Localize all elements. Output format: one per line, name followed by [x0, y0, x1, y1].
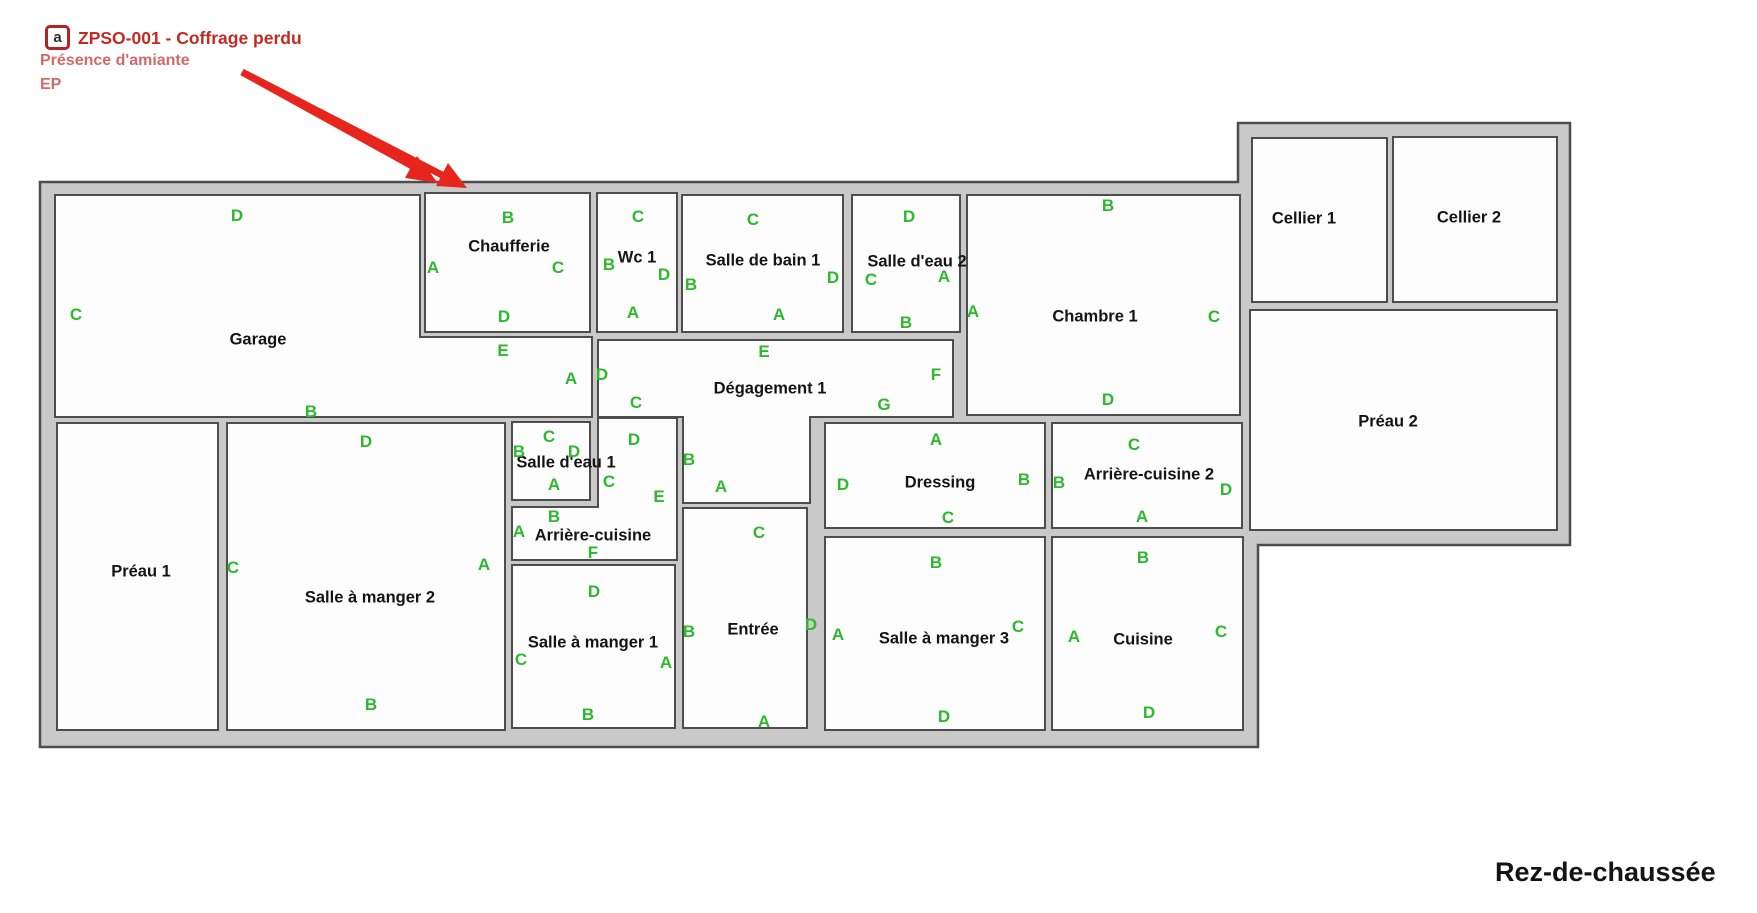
room-label-salle-de-bain-1: Salle de bain 1 — [706, 252, 821, 271]
asbestos-marker-icon[interactable]: a — [45, 25, 70, 50]
face-letter-entree-C[interactable]: C — [753, 523, 765, 543]
face-letter-wc-1-C[interactable]: C — [632, 207, 644, 227]
floor-plan-page: a ZPSO-001 - Coffrage perdu Présence d'a… — [0, 0, 1757, 913]
room-label-preau-1: Préau 1 — [111, 563, 171, 582]
plan-overlay: a ZPSO-001 - Coffrage perdu Présence d'a… — [0, 0, 1757, 913]
face-letter-salle-d-eau-1-C[interactable]: C — [543, 427, 555, 447]
face-letter-salle-d-eau-1-D[interactable]: D — [568, 442, 580, 462]
face-letter-garage-C[interactable]: C — [70, 305, 82, 325]
face-letter-degagement-1-E[interactable]: E — [758, 342, 769, 362]
face-letter-garage-E[interactable]: E — [497, 341, 508, 361]
annotation-title: ZPSO-001 - Coffrage perdu — [78, 28, 302, 49]
face-letter-cuisine-D[interactable]: D — [1143, 703, 1155, 723]
face-letter-entree-A[interactable]: A — [758, 712, 770, 732]
room-label-chaufferie: Chaufferie — [468, 238, 550, 257]
face-letter-chambre-1-A[interactable]: A — [967, 302, 979, 322]
room-label-cellier-1: Cellier 1 — [1272, 210, 1336, 229]
face-letter-salle-de-bain-1-C[interactable]: C — [747, 210, 759, 230]
face-letter-salle-a-manger-3-B[interactable]: B — [930, 553, 942, 573]
room-label-entree: Entrée — [727, 621, 778, 640]
face-letter-salle-a-manger-2-B[interactable]: B — [365, 695, 377, 715]
face-letter-salle-d-eau-1-A[interactable]: A — [548, 475, 560, 495]
face-letter-arriere-cuisine-A[interactable]: A — [513, 522, 525, 542]
face-letter-cuisine-B[interactable]: B — [1137, 548, 1149, 568]
face-letter-dressing-D[interactable]: D — [837, 475, 849, 495]
face-letter-salle-d-eau-2-B[interactable]: B — [900, 313, 912, 333]
face-letter-arriere-cuisine-2-C[interactable]: C — [1128, 435, 1140, 455]
face-letter-salle-a-manger-3-D[interactable]: D — [938, 707, 950, 727]
face-letter-degagement-1-D[interactable]: D — [596, 365, 608, 385]
face-letter-entree-B[interactable]: B — [683, 622, 695, 642]
face-letter-arriere-cuisine-E[interactable]: E — [653, 487, 664, 507]
face-letter-arriere-cuisine-B[interactable]: B — [548, 507, 560, 527]
face-letter-chaufferie-C[interactable]: C — [552, 258, 564, 278]
face-letter-salle-d-eau-2-A[interactable]: A — [938, 267, 950, 287]
room-label-salle-d-eau-1: Salle d'eau 1 — [516, 454, 615, 473]
room-label-cellier-2: Cellier 2 — [1437, 209, 1501, 228]
face-letter-chambre-1-B[interactable]: B — [1102, 196, 1114, 216]
face-letter-dressing-B[interactable]: B — [1018, 470, 1030, 490]
room-label-degagement-1: Dégagement 1 — [714, 380, 827, 399]
face-letter-salle-de-bain-1-D[interactable]: D — [827, 268, 839, 288]
face-letter-chambre-1-D[interactable]: D — [1102, 390, 1114, 410]
face-letter-garage-D[interactable]: D — [231, 206, 243, 226]
face-letter-degagement-1-B[interactable]: B — [683, 450, 695, 470]
face-letter-salle-a-manger-1-C[interactable]: C — [515, 650, 527, 670]
face-letter-wc-1-A[interactable]: A — [627, 303, 639, 323]
face-letter-arriere-cuisine-F[interactable]: F — [588, 543, 598, 563]
face-letter-wc-1-B[interactable]: B — [603, 255, 615, 275]
face-letter-degagement-1-A[interactable]: A — [715, 477, 727, 497]
face-letter-garage-B[interactable]: B — [305, 402, 317, 422]
face-letter-salle-a-manger-1-A[interactable]: A — [660, 653, 672, 673]
floor-name-label: Rez-de-chaussée — [1495, 857, 1716, 888]
face-letter-chaufferie-B[interactable]: B — [502, 208, 514, 228]
room-label-chambre-1: Chambre 1 — [1052, 308, 1137, 327]
room-label-preau-2: Préau 2 — [1358, 413, 1418, 432]
face-letter-degagement-1-C[interactable]: C — [630, 393, 642, 413]
face-letter-entree-D[interactable]: D — [805, 615, 817, 635]
room-label-salle-a-manger-2: Salle à manger 2 — [305, 589, 435, 608]
room-label-salle-d-eau-2: Salle d'eau 2 — [867, 253, 966, 272]
face-letter-garage-A[interactable]: A — [565, 369, 577, 389]
face-letter-salle-a-manger-2-D[interactable]: D — [360, 432, 372, 452]
room-label-arriere-cuisine-2: Arrière-cuisine 2 — [1084, 466, 1214, 485]
face-letter-salle-a-manger-3-C[interactable]: C — [1012, 617, 1024, 637]
face-letter-salle-a-manger-1-D[interactable]: D — [588, 582, 600, 602]
face-letter-dressing-A[interactable]: A — [930, 430, 942, 450]
face-letter-arriere-cuisine-2-D[interactable]: D — [1220, 480, 1232, 500]
face-letter-chambre-1-C[interactable]: C — [1208, 307, 1220, 327]
face-letter-arriere-cuisine-C[interactable]: C — [603, 472, 615, 492]
face-letter-degagement-1-F[interactable]: F — [931, 365, 941, 385]
face-letter-salle-a-manger-2-C[interactable]: C — [227, 558, 239, 578]
room-label-cuisine: Cuisine — [1113, 631, 1173, 650]
face-letter-arriere-cuisine-2-A[interactable]: A — [1136, 507, 1148, 527]
face-letter-chaufferie-A[interactable]: A — [427, 258, 439, 278]
face-letter-dressing-C[interactable]: C — [942, 508, 954, 528]
face-letter-wc-1-D[interactable]: D — [658, 265, 670, 285]
room-label-dressing: Dressing — [905, 474, 976, 493]
face-letter-salle-a-manger-3-A[interactable]: A — [832, 625, 844, 645]
room-label-salle-a-manger-1: Salle à manger 1 — [528, 634, 658, 653]
face-letter-salle-a-manger-1-B[interactable]: B — [582, 705, 594, 725]
room-label-wc-1: Wc 1 — [618, 249, 657, 268]
face-letter-arriere-cuisine-2-B[interactable]: B — [1053, 473, 1065, 493]
face-letter-salle-d-eau-2-D[interactable]: D — [903, 207, 915, 227]
annotation-line2: Présence d'amiante — [40, 52, 190, 70]
face-letter-cuisine-A[interactable]: A — [1068, 627, 1080, 647]
annotation-line3: EP — [40, 76, 61, 94]
face-letter-cuisine-C[interactable]: C — [1215, 622, 1227, 642]
room-label-garage: Garage — [230, 331, 287, 350]
face-letter-salle-de-bain-1-A[interactable]: A — [773, 305, 785, 325]
face-letter-chaufferie-D[interactable]: D — [498, 307, 510, 327]
face-letter-salle-a-manger-2-A[interactable]: A — [478, 555, 490, 575]
face-letter-arriere-cuisine-D[interactable]: D — [628, 430, 640, 450]
face-letter-salle-de-bain-1-B[interactable]: B — [685, 275, 697, 295]
face-letter-salle-d-eau-2-C[interactable]: C — [865, 270, 877, 290]
face-letter-salle-d-eau-1-B[interactable]: B — [513, 442, 525, 462]
face-letter-degagement-1-G[interactable]: G — [877, 395, 890, 415]
room-label-salle-a-manger-3: Salle à manger 3 — [879, 630, 1009, 649]
